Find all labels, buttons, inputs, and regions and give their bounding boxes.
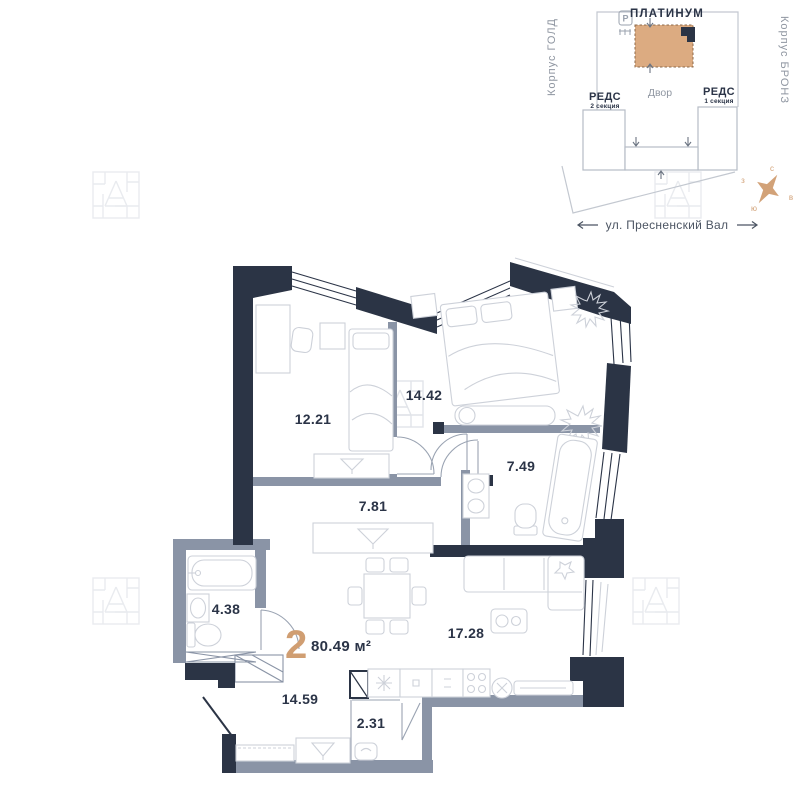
- site-block-center: [625, 147, 698, 170]
- street-arrow-right: [737, 222, 757, 229]
- console-table: [296, 738, 350, 763]
- toilet: [514, 504, 537, 535]
- site-plan: P ПЛАТИНУМ Двор РЕДС 2 секция РЕДС 1 сек…: [546, 8, 790, 232]
- site-title: ПЛАТИНУМ: [630, 8, 704, 20]
- arrow-down-court-left: [633, 137, 639, 146]
- compass-west: з: [741, 176, 745, 185]
- area-corridor: 14.59: [282, 691, 319, 707]
- street-arrow-left: [578, 222, 598, 229]
- site-road-line: [562, 166, 735, 213]
- watermark-mid-right: [633, 578, 679, 624]
- site-block-right: [698, 107, 737, 170]
- furniture-corridor: [236, 738, 377, 763]
- facade-line-right: [596, 582, 608, 655]
- watermark-mid-left: [93, 578, 139, 624]
- building-left-label: Корпус ГОЛД: [546, 18, 558, 96]
- door-bedroom-1: [441, 440, 478, 477]
- watermark-top-right: [655, 172, 701, 218]
- area-wardrobe: 2.31: [357, 715, 385, 731]
- rooms-count: 2: [285, 623, 307, 667]
- compass-south: ю: [751, 204, 757, 213]
- dining-set: [348, 558, 426, 634]
- area-living: 17.28: [448, 625, 485, 641]
- arrow-down-court-right: [685, 137, 691, 146]
- door-bedroom-2: [397, 437, 434, 474]
- section-left-name: РЕДС: [589, 91, 621, 103]
- hall-wardrobe: [313, 523, 433, 553]
- kitchen-cabinet-2: [432, 669, 463, 697]
- apartment-plan: 12.21 14.42 7.49 7.81 4.38 17.28 14.59 2…: [173, 258, 631, 773]
- pillow-left: [446, 306, 478, 328]
- furniture-bath-main: [463, 434, 598, 542]
- area-bedroom-2: 14.42: [406, 387, 443, 403]
- toilet-small: [187, 623, 221, 647]
- wardrobe-bedroom-1: [314, 454, 389, 478]
- total-area: 80.49 м²: [311, 638, 371, 655]
- nightstand-right: [551, 286, 578, 311]
- floorplan-page: P ПЛАТИНУМ Двор РЕДС 2 секция РЕДС 1 сек…: [0, 0, 800, 800]
- svg-text:P: P: [622, 14, 628, 24]
- stove: [463, 669, 490, 697]
- site-block-left: [583, 110, 625, 170]
- furniture-bedroom-2: [411, 276, 608, 444]
- bench-roll: [459, 408, 475, 424]
- window-top-left: [292, 272, 356, 305]
- section-right-name: РЕДС: [703, 86, 735, 98]
- coffee-table: [491, 609, 527, 633]
- compass-east: в: [789, 193, 793, 202]
- area-bath-main: 7.49: [507, 458, 535, 474]
- dining-table: [364, 574, 410, 618]
- window-right-2: [596, 452, 620, 520]
- street-label: ул. Пресненский Вал: [606, 218, 729, 232]
- desk-chair: [290, 327, 313, 354]
- furniture-bedroom-1: [256, 305, 393, 478]
- compass-north: с: [770, 164, 774, 173]
- entrance-door-leaf: [203, 697, 232, 736]
- shoe-cabinet: [236, 745, 294, 761]
- sofa: [464, 556, 584, 610]
- pillow-right: [480, 301, 512, 323]
- courtyard-label: Двор: [648, 87, 672, 99]
- playground-icon: [619, 29, 631, 35]
- area-hallway: 7.81: [359, 498, 387, 514]
- nightstand: [320, 323, 345, 349]
- desk: [256, 305, 290, 373]
- pouf: [355, 743, 377, 760]
- sink-small: [187, 594, 209, 622]
- door-bath-main: [431, 434, 467, 470]
- building-right-label: Корпус БРОНЗ: [778, 16, 790, 104]
- compass: с з в ю: [741, 164, 793, 213]
- sink-counter: [463, 474, 489, 518]
- kitchen-cabinet-1: [400, 669, 432, 697]
- area-bedroom-1: 12.21: [295, 411, 332, 427]
- floorplan-canvas: P ПЛАТИНУМ Двор РЕДС 2 секция РЕДС 1 сек…: [0, 0, 800, 800]
- watermark-top-left: [93, 172, 139, 218]
- door-wardrobe: [402, 703, 420, 740]
- section-right-sub: 1 секция: [704, 98, 733, 105]
- area-bath-small: 4.38: [212, 601, 240, 617]
- kitchen-row: [350, 669, 573, 698]
- bathtub-small: [188, 556, 256, 590]
- nightstand-left: [411, 294, 438, 319]
- pillow: [353, 333, 389, 349]
- bathtub: [542, 434, 598, 542]
- section-left-sub: 2 секция: [590, 103, 619, 110]
